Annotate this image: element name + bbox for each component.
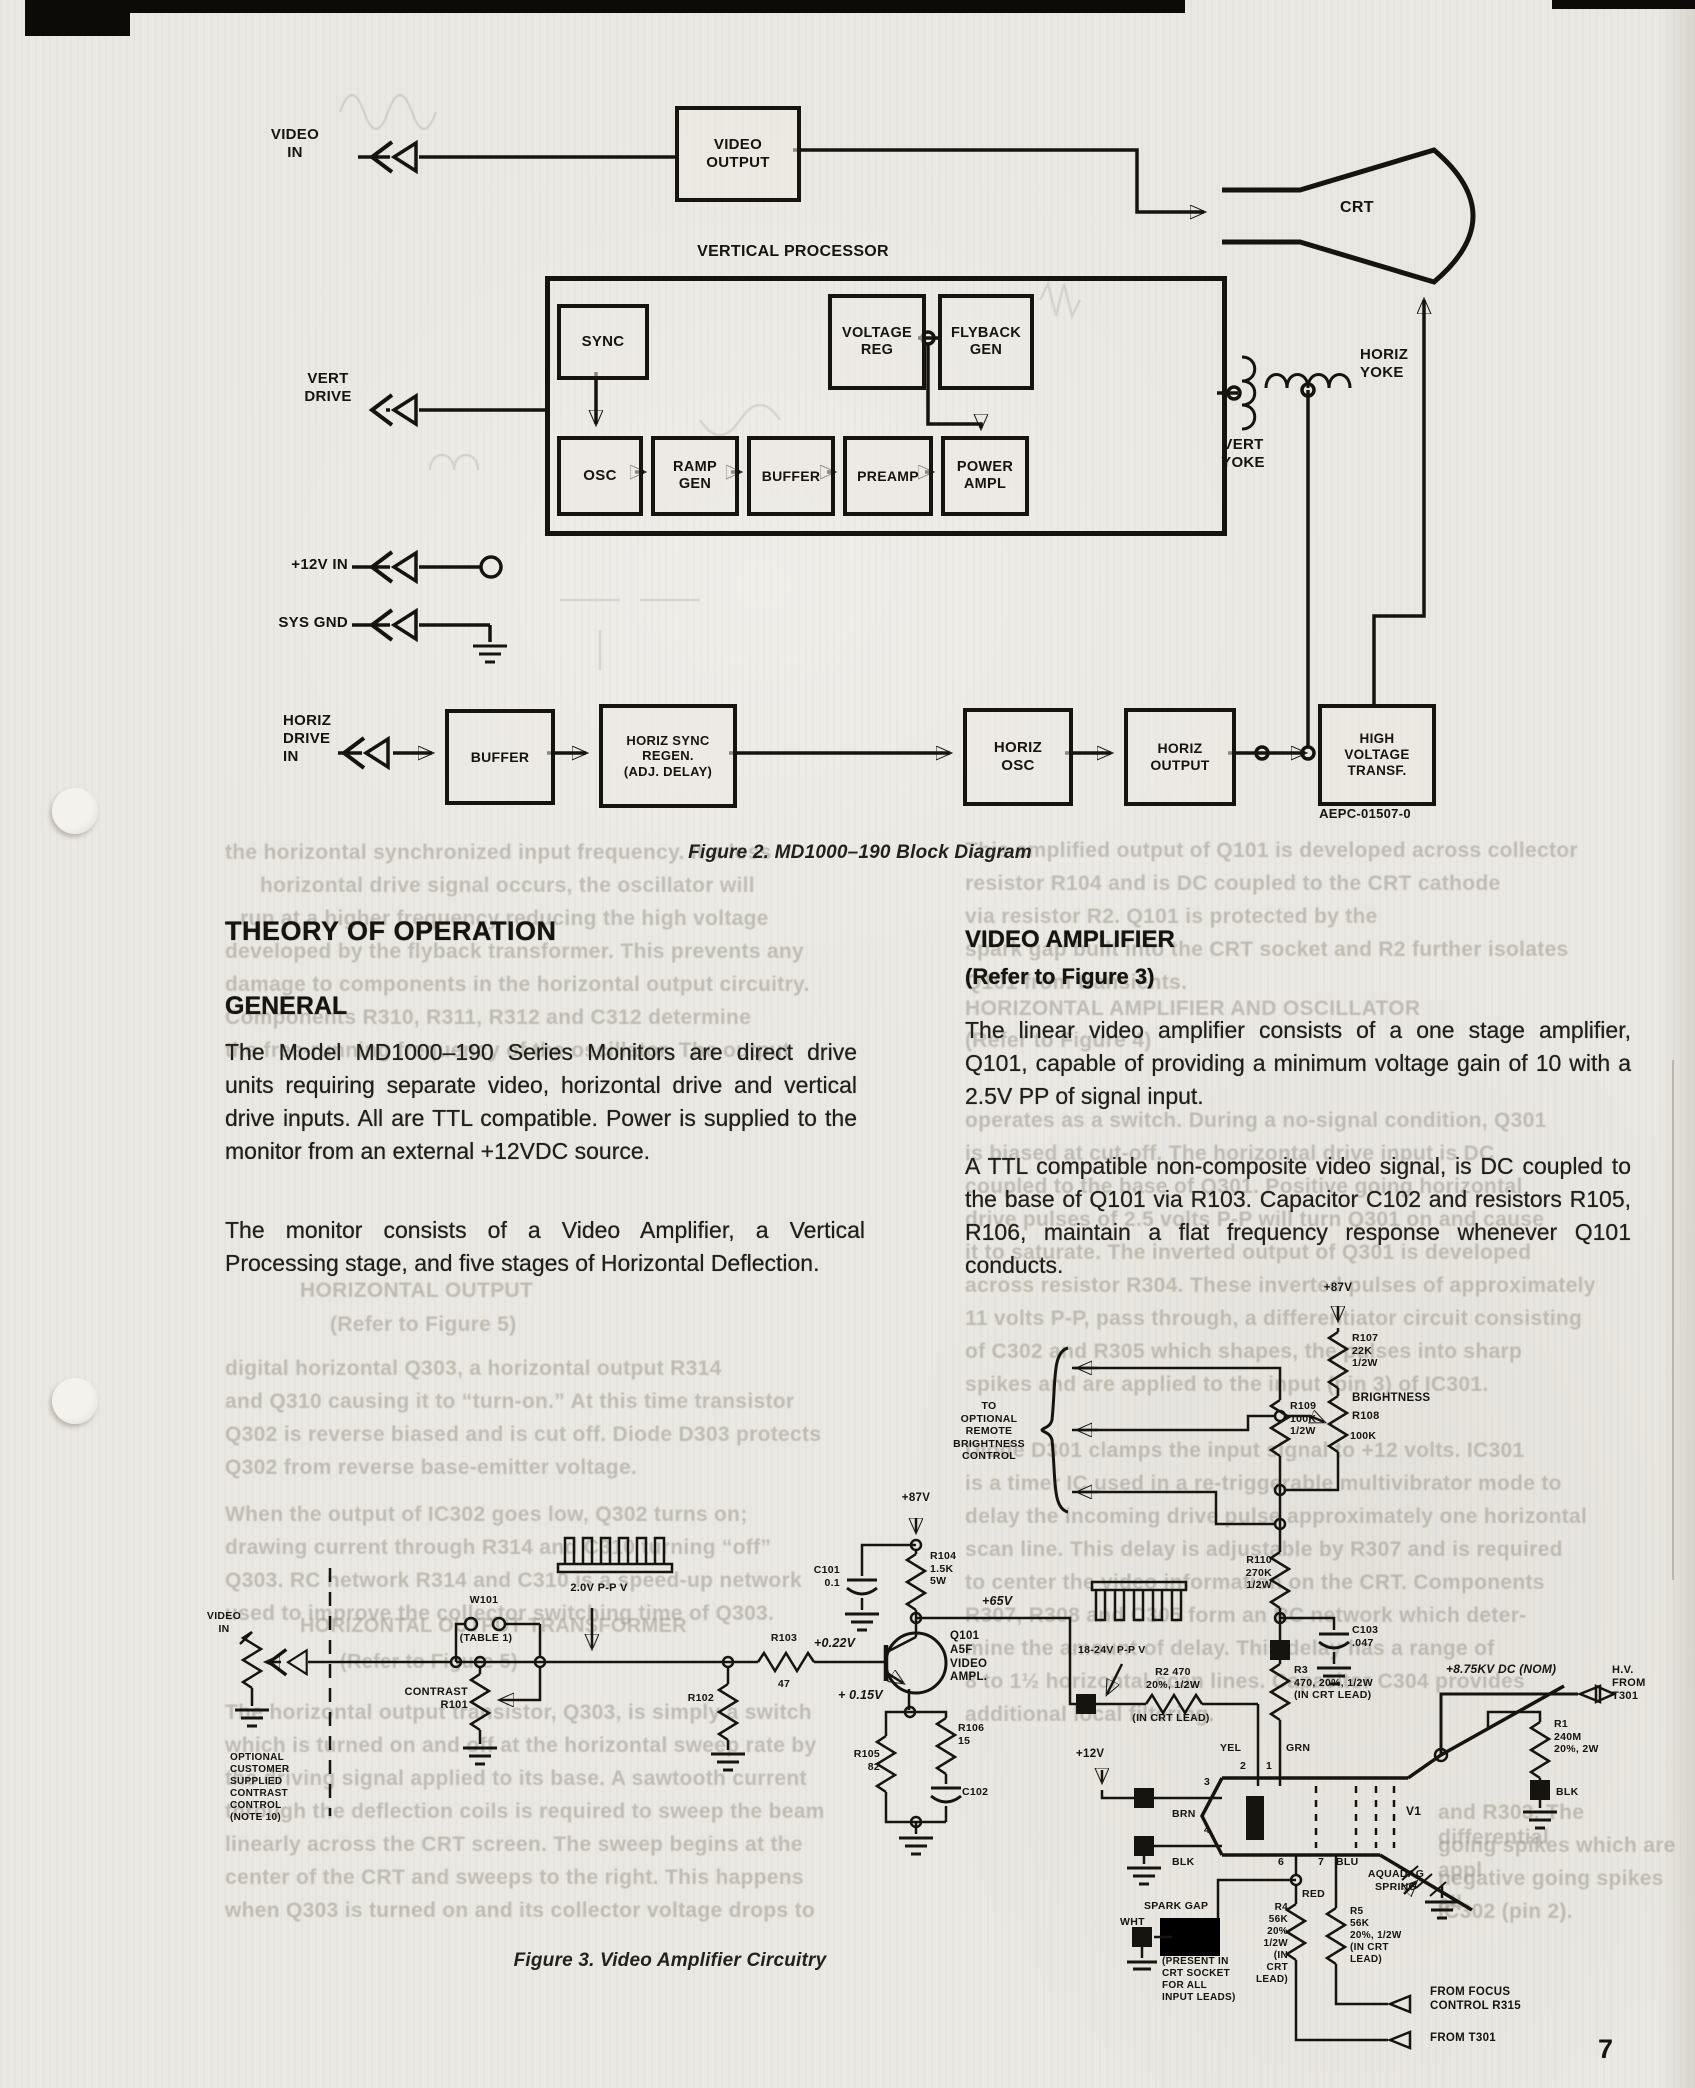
f3-r5: R5 56K 20%, 1/2W (IN CRT LEAD) — [1350, 1906, 1440, 1966]
video-amplifier-heading: VIDEO AMPLIFIER — [965, 926, 1175, 954]
osc-box: OSC — [557, 436, 643, 516]
f3-q101: Q101 A5F VIDEO AMPL. — [950, 1630, 1016, 1685]
f3-r103: R103 — [756, 1632, 812, 1645]
f3-aquadag: AQUADAG SPRING — [1354, 1868, 1438, 1893]
f3-from-t301: FROM T301 — [1430, 2032, 1560, 2046]
f3-r2: R2 470 20%, 1/2W — [1126, 1666, 1220, 1691]
sync-box: SYNC — [557, 304, 649, 380]
f3-wht: WHT — [1120, 1916, 1158, 1929]
f3-p12v: +12V — [1076, 1748, 1130, 1762]
video-amplifier-subheading: (Refer to Figure 3) — [965, 964, 1154, 990]
buffer-vert-box: BUFFER — [747, 436, 835, 516]
f3-r105: R105 82 — [832, 1748, 880, 1773]
voltage-reg-box: VOLTAGE REG — [828, 294, 926, 390]
f3-r103-val: 47 — [762, 1678, 806, 1691]
f3-c102: C102 — [962, 1786, 1010, 1799]
f3-r102: R102 — [662, 1692, 714, 1705]
f3-optional-note: OPTIONAL CUSTOMER SUPPLIED CONTRAST CONT… — [230, 1752, 320, 1824]
p12v-in-label: +12V IN — [230, 556, 348, 574]
f3-v1: V1 — [1406, 1804, 1438, 1818]
theory-of-operation-heading: THEORY OF OPERATION — [225, 916, 557, 947]
hv-transf-box: HIGH VOLTAGE TRANSF. — [1318, 704, 1436, 806]
f3-grn: GRN — [1286, 1742, 1324, 1755]
scan-bar-top — [25, 0, 1185, 13]
video-output-box: VIDEO OUTPUT — [675, 106, 801, 202]
f3-blu: BLU — [1336, 1856, 1372, 1869]
f3-r4: R4 56K 20% 1/2W (IN CRT LEAD) — [1238, 1902, 1288, 1986]
scan-bar-top-left — [25, 13, 130, 36]
f3-video-in: VIDEO IN — [196, 1610, 252, 1635]
f3-87v-a: +87V — [886, 1492, 946, 1506]
f3-r2-crt: (IN CRT LEAD) — [1112, 1712, 1230, 1725]
f3-pin2: 2 — [1240, 1760, 1254, 1773]
f3-pin3: 3 — [1204, 1776, 1218, 1789]
f3-from-focus: FROM FOCUS CONTROL R315 — [1430, 1986, 1590, 2014]
f3-c103: C103 .047 — [1352, 1624, 1404, 1649]
general-paragraph-1: The Model MD1000–190 Series Monitors are… — [225, 1036, 857, 1168]
f3-r106: R106 15 — [958, 1722, 1006, 1747]
horiz-sync-regen-box: HORIZ SYNC REGEN. (ADJ. DELAY) — [599, 704, 737, 808]
scan-bar-top-right — [1552, 0, 1695, 9]
f3-brn: BRN — [1172, 1808, 1212, 1821]
vertical-processor-title: VERTICAL PROCESSOR — [648, 242, 938, 261]
f3-r108: R108 — [1352, 1410, 1412, 1423]
f3-r107: R107 22K 1/2W — [1352, 1332, 1404, 1370]
buffer-horiz-box: BUFFER — [445, 709, 555, 805]
f3-2v-pp: 2.0V P-P V — [544, 1582, 654, 1595]
f3-hv-from: H.V. FROM T301 — [1612, 1664, 1674, 1704]
general-heading: GENERAL — [225, 992, 347, 1021]
preamp-box: PREAMP — [843, 436, 933, 516]
aepc-code: AEPC-01507-0 — [1290, 806, 1440, 822]
f3-r110: R110 270K 1/2W — [1212, 1554, 1272, 1592]
power-ampl-box: POWER AMPL — [941, 436, 1029, 516]
f3-18-24v: 18-24V P-P V — [1078, 1644, 1190, 1657]
f3-spark-gap: SPARK GAP — [1144, 1900, 1236, 1913]
f3-r109: R109 100K 1/2W — [1290, 1400, 1342, 1438]
scanned-manual-page: the horizontal synchronized input freque… — [0, 0, 1695, 2088]
f3-c101: C101 0.1 — [792, 1564, 840, 1589]
page-number: 7 — [1598, 2034, 1613, 2065]
crt-label: CRT — [1340, 198, 1400, 217]
f3-blk-r1: BLK — [1556, 1786, 1594, 1799]
sys-gnd-label: SYS GND — [230, 614, 348, 632]
f3-r104: R104 1.5K 5W — [930, 1550, 982, 1588]
ramp-gen-box: RAMP GEN — [651, 436, 739, 516]
f3-contrast-r101: CONTRAST R101 — [360, 1686, 468, 1712]
video-in-label: VIDEO IN — [252, 126, 338, 162]
f3-v65: +65V — [982, 1594, 1046, 1609]
f3-hv-nom: +8.75KV DC (NOM) — [1446, 1662, 1610, 1676]
f3-table1: (TABLE 1) — [444, 1632, 528, 1645]
f3-brightness: BRIGHTNESS — [1352, 1392, 1472, 1406]
f3-pin7: 7 — [1318, 1856, 1332, 1869]
f3-remote-brightness: TO OPTIONAL REMOTE BRIGHTNESS CONTROL — [928, 1400, 1050, 1463]
f3-pin6: 6 — [1278, 1856, 1292, 1869]
f3-r1: R1 240M 20%, 2W — [1554, 1718, 1630, 1756]
fig3-caption: Figure 3. Video Amplifier Circuitry — [440, 1950, 900, 1973]
horiz-yoke-label: HORIZ YOKE — [1360, 346, 1450, 382]
horiz-output-box: HORIZ OUTPUT — [1124, 708, 1236, 806]
f3-pin4: 4 — [1204, 1824, 1218, 1837]
video-amplifier-paragraph-1: The linear video amplifier consists of a… — [965, 1014, 1631, 1113]
f3-r3: R3 470, 20%, 1/2W (IN CRT LEAD) — [1294, 1664, 1420, 1702]
f3-v015: + 0.15V — [838, 1688, 904, 1703]
f3-yel: YEL — [1220, 1742, 1256, 1755]
f3-red: RED — [1302, 1888, 1338, 1901]
vert-drive-label: VERT DRIVE — [285, 370, 371, 406]
video-amplifier-paragraph-2: A TTL compatible non-composite video sig… — [965, 1150, 1631, 1282]
f3-87v-b: +87V — [1308, 1282, 1368, 1296]
f3-pin1: 1 — [1266, 1760, 1280, 1773]
f3-blk-pin4: BLK — [1172, 1856, 1210, 1869]
horiz-drive-in-label: HORIZ DRIVE IN — [283, 712, 373, 766]
general-paragraph-2: The monitor consists of a Video Amplifie… — [225, 1214, 865, 1280]
f3-r108-val: 100K — [1350, 1430, 1400, 1443]
f3-v022: +0.22V — [814, 1636, 886, 1651]
flyback-gen-box: FLYBACK GEN — [938, 294, 1034, 390]
vert-yoke-label: VERT YOKE — [1198, 436, 1288, 472]
horiz-osc-box: HORIZ OSC — [963, 708, 1073, 806]
f3-w101: W101 — [454, 1594, 514, 1607]
fig2-caption: Figure 2. MD1000–190 Block Diagram — [640, 842, 1080, 865]
